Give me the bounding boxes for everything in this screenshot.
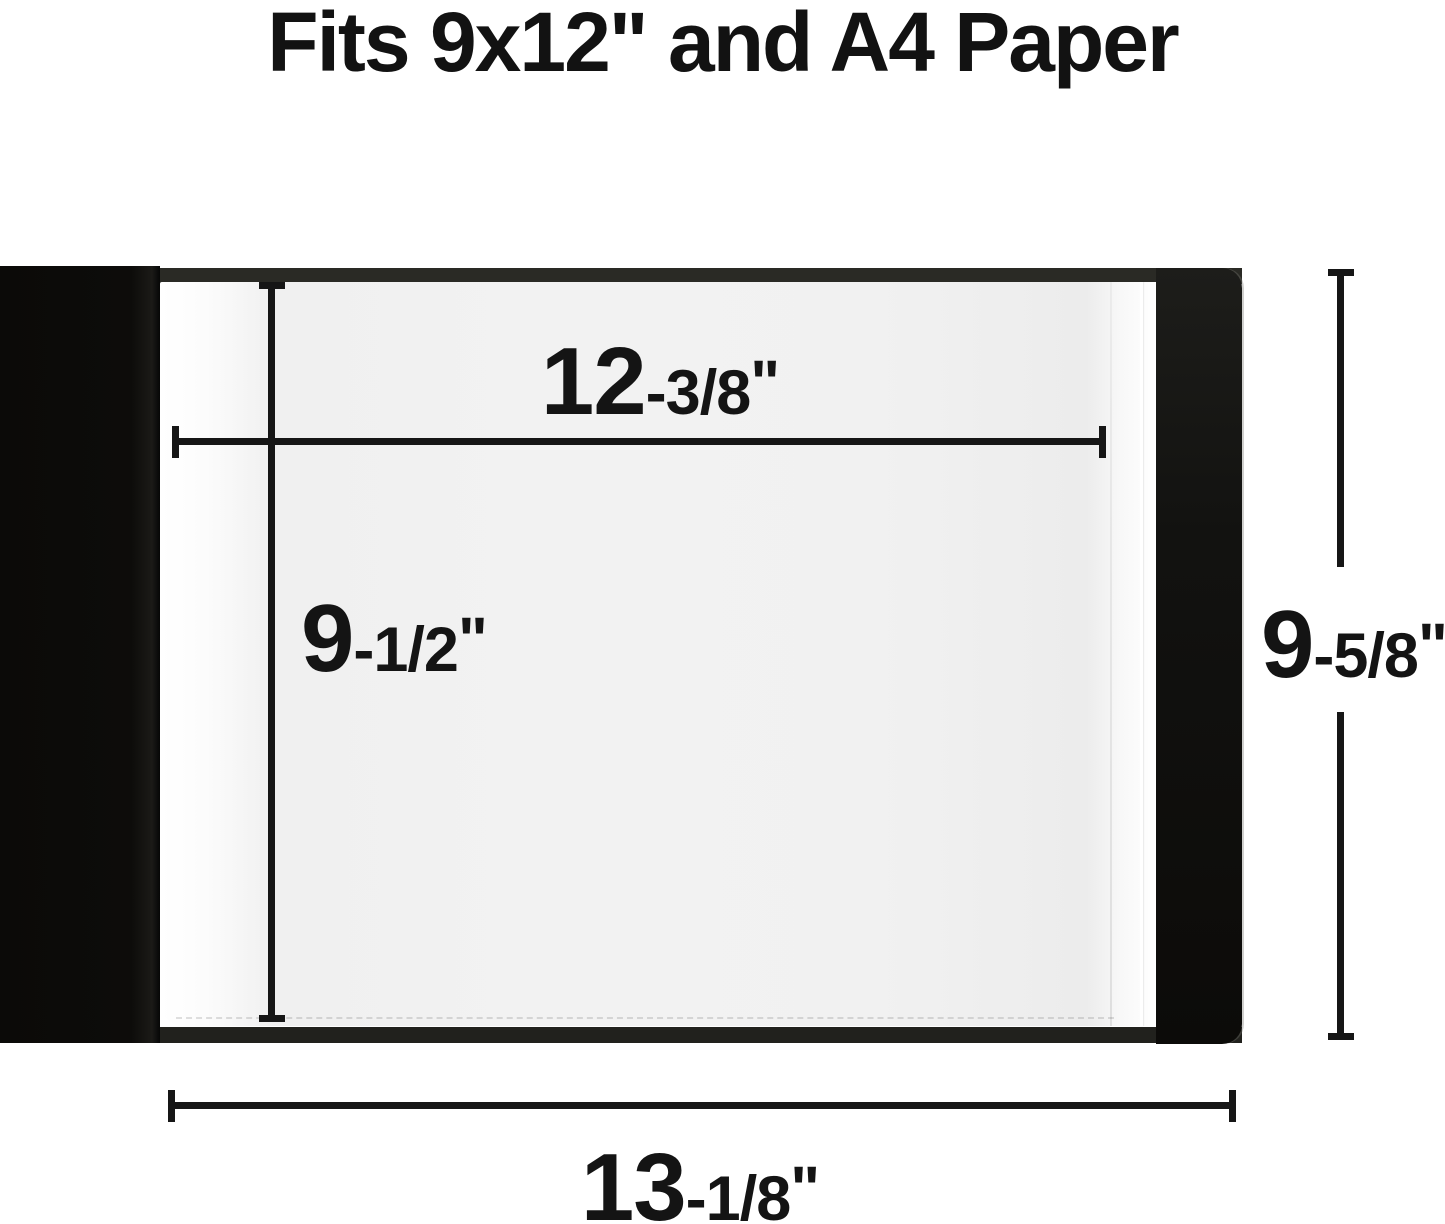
dimension-endcap	[1328, 1033, 1354, 1040]
diagram-title: Fits 9x12" and A4 Paper	[0, 0, 1445, 84]
dimension-endcap	[172, 426, 179, 458]
dimension-label-inner-height: 9 -1/2 "	[301, 591, 487, 687]
dimension-label-outer-width: 13 -1/8 "	[480, 1140, 920, 1224]
dimension-endcap	[259, 1015, 285, 1022]
dimension-fraction: -1/8	[686, 1168, 791, 1224]
dimension-value: 9	[301, 591, 353, 687]
sheet-protector-edge	[1110, 282, 1112, 1026]
dimension-line-outer-height-lower	[1337, 712, 1344, 1040]
inch-mark: "	[1418, 615, 1445, 678]
dimension-endcap	[168, 1090, 175, 1122]
dimension-line-inner-height	[268, 282, 275, 1022]
dimension-fraction: -3/8	[646, 362, 751, 425]
dimension-label-inner-width: 12 -3/8 "	[440, 334, 880, 430]
dimension-endcap	[1099, 426, 1106, 458]
dimension-value: 13	[581, 1140, 686, 1224]
inch-mark: "	[790, 1158, 819, 1221]
binder-right-cover	[1156, 268, 1242, 1044]
dimension-endcap	[259, 282, 285, 289]
dimension-endcap	[1229, 1090, 1236, 1122]
page-stack-edge	[1140, 282, 1143, 1026]
inch-mark: "	[750, 352, 779, 415]
dimension-endcap	[1328, 269, 1354, 276]
dimension-line-inner-width	[172, 438, 1106, 445]
dimension-label-outer-height: 9 -5/8 "	[1261, 597, 1445, 693]
dimension-value: 12	[541, 334, 646, 430]
dimension-value: 9	[1261, 597, 1313, 693]
binder-bottom-edge	[150, 1027, 1242, 1043]
dimension-line-outer-width	[168, 1102, 1236, 1109]
sheet-protector-weld-seam	[176, 1017, 1114, 1019]
product-dimension-diagram: Fits 9x12" and A4 Paper 12 -3/8 " 9 -1/2…	[0, 0, 1445, 1224]
binder-left-cover	[0, 266, 160, 1043]
dimension-fraction: -1/2	[353, 619, 458, 682]
dimension-fraction: -5/8	[1313, 625, 1418, 688]
inch-mark: "	[458, 609, 487, 672]
dimension-line-outer-height-upper	[1337, 269, 1344, 567]
